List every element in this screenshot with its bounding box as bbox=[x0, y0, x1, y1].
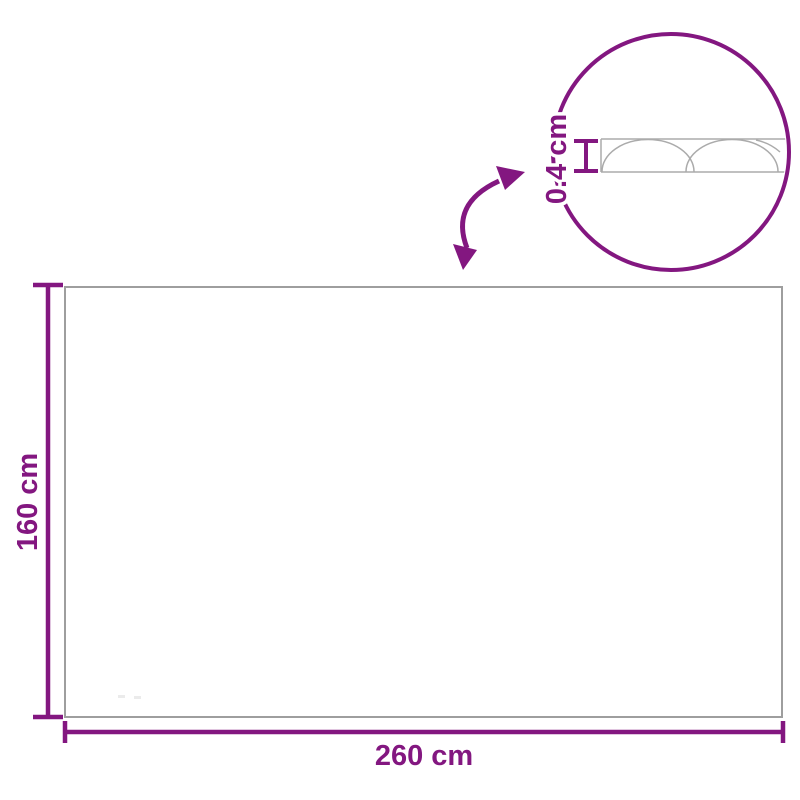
thickness-dimension-line bbox=[574, 141, 598, 171]
width-label: 260 cm bbox=[375, 740, 473, 772]
product-dimension-diagram: 160 cm 260 cm 0.4 cm bbox=[0, 0, 800, 800]
diagram-svg: 160 cm 260 cm 0.4 cm bbox=[0, 0, 800, 800]
thickness-label: 0.4 cm bbox=[541, 114, 573, 204]
profile-bump-1 bbox=[602, 140, 694, 172]
detail-zoom-circle bbox=[553, 34, 789, 270]
profile-bump-2 bbox=[686, 140, 778, 172]
zoom-arrow-head-bottom bbox=[453, 244, 477, 270]
product-outline-rectangle bbox=[65, 287, 782, 717]
cross-section-profile bbox=[601, 139, 790, 172]
zoom-arrow-head-top bbox=[496, 166, 525, 190]
zoom-arrow bbox=[453, 166, 525, 270]
height-label: 160 cm bbox=[12, 453, 44, 551]
